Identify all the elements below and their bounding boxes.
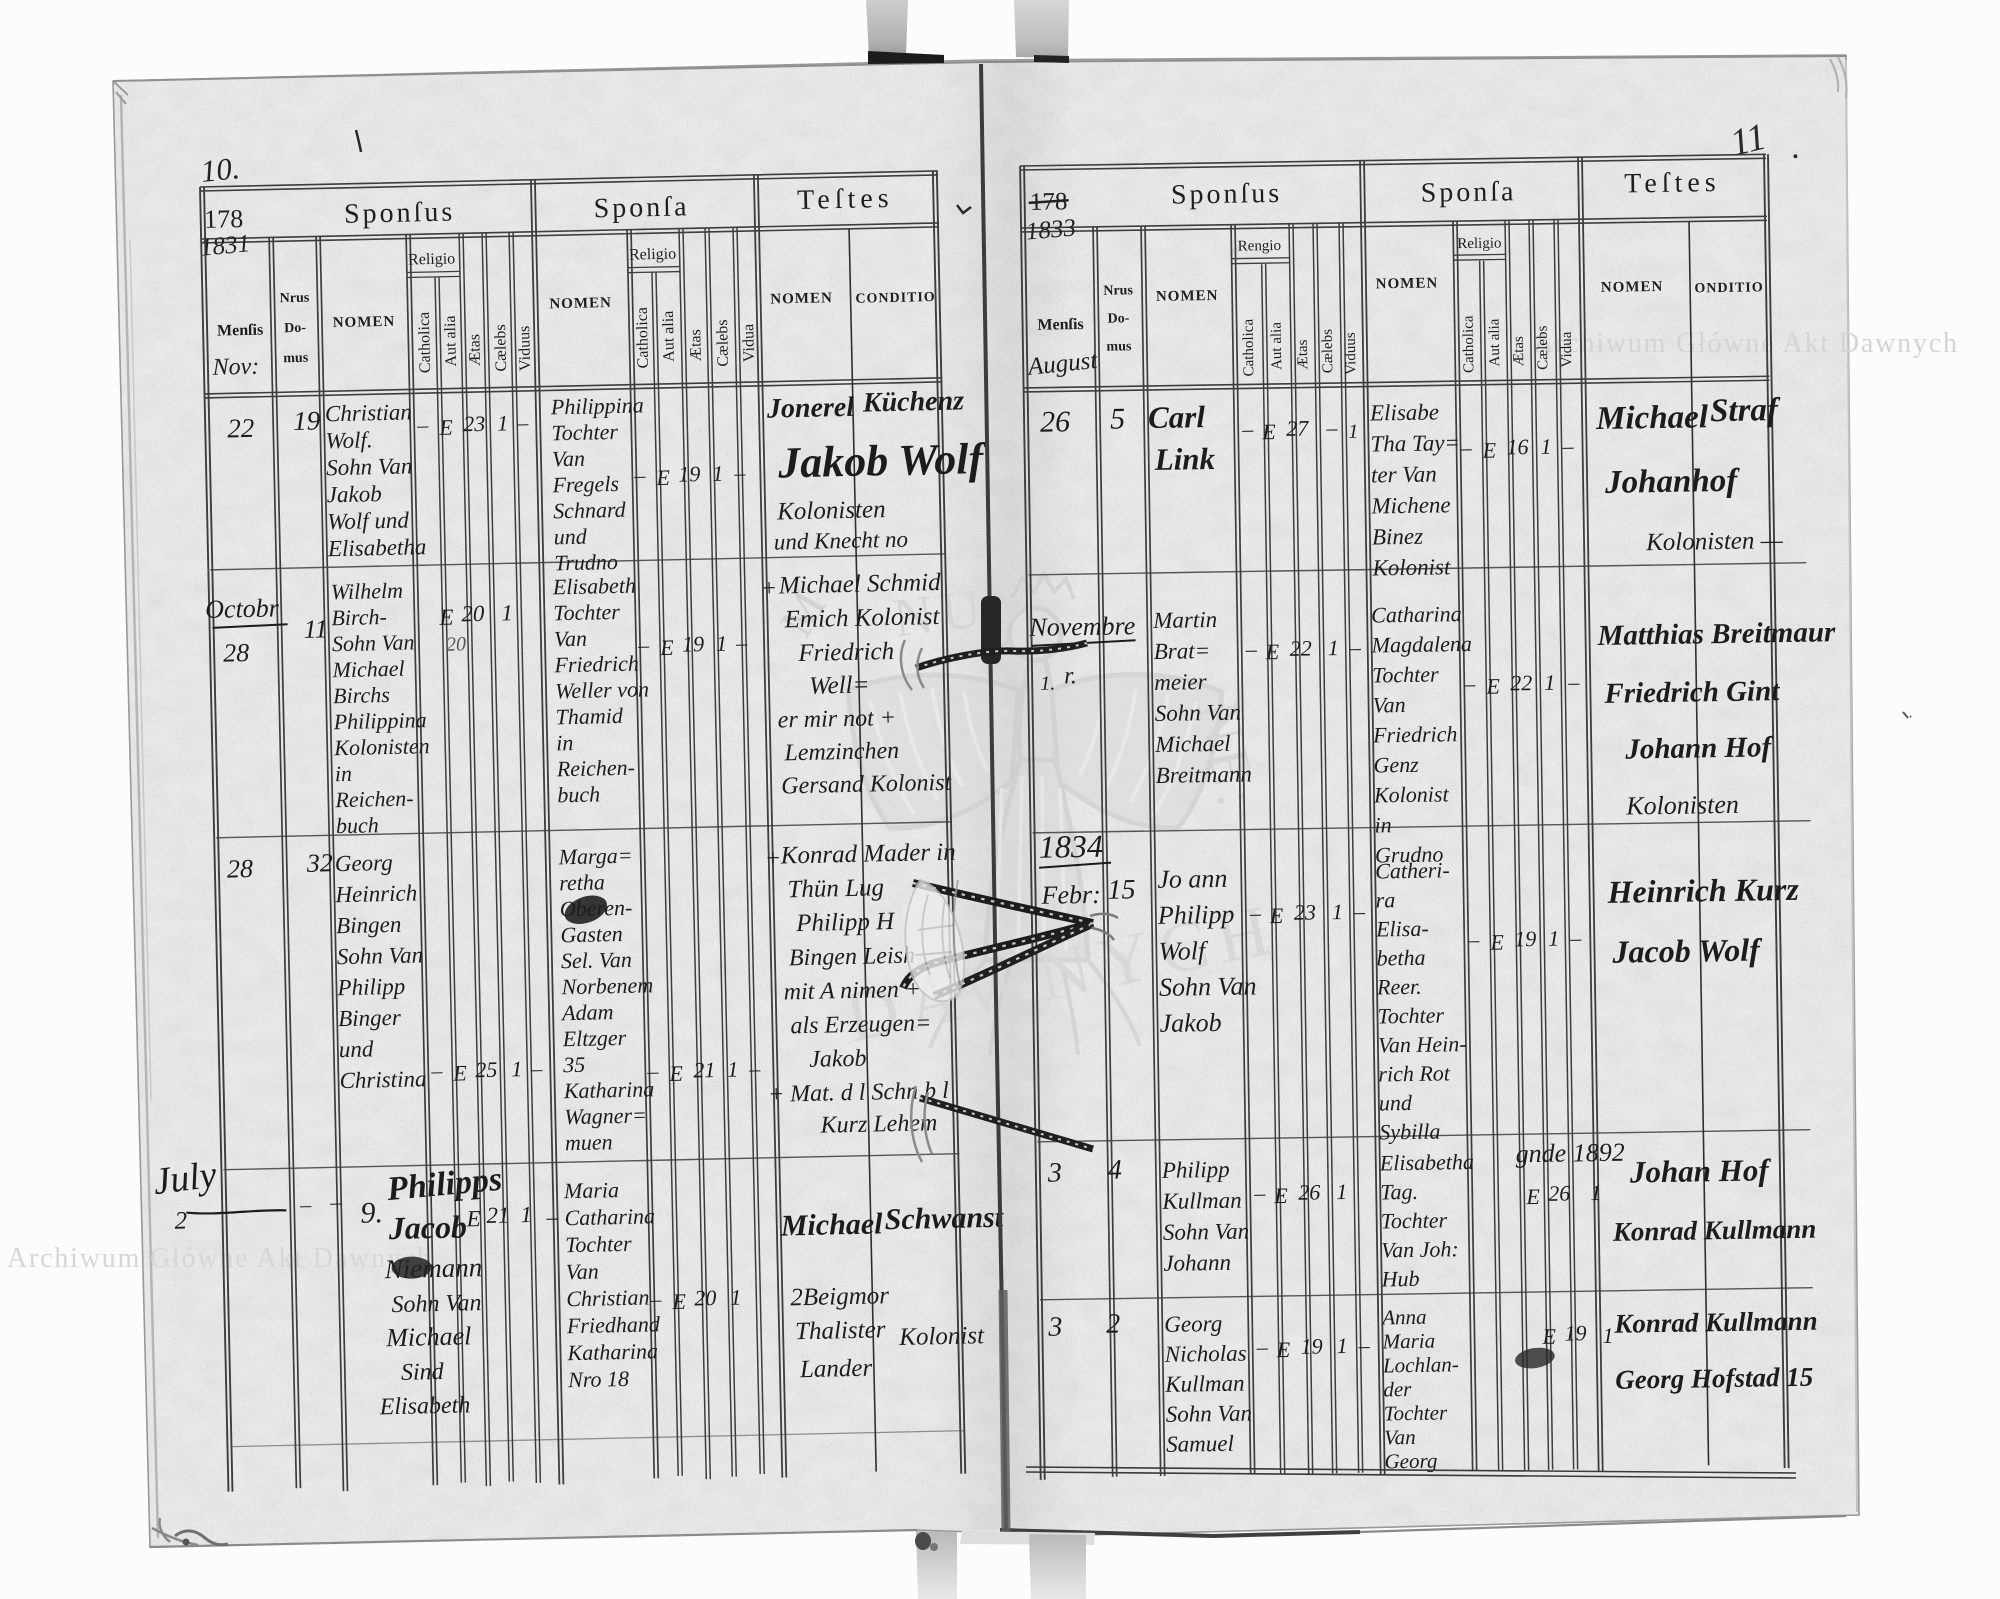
svg-text:Ætas: Ætas [1295,339,1311,369]
svg-text:19: 19 [1300,1333,1322,1358]
svg-text:Marga=: Marga= [557,843,632,870]
svg-text:Elisabe: Elisabe [1369,399,1439,425]
svg-text:Well=: Well= [809,672,870,700]
svg-text:Rengio: Rengio [1238,238,1282,255]
svg-text:Michael: Michael [1154,731,1231,757]
svg-text:Birchs: Birchs [333,682,390,708]
svg-text:Friedrich Gint: Friedrich Gint [1603,675,1780,710]
svg-text:Michael: Michael [331,656,405,683]
svg-text:–: – [733,460,747,485]
svg-text:Brat=: Brat= [1154,638,1211,664]
svg-text:–: – [633,462,647,487]
svg-text:Friedrich: Friedrich [553,651,639,678]
svg-text:Nrus: Nrus [280,291,310,307]
svg-text:Thamid: Thamid [555,703,624,729]
svg-text:Sohn Van: Sohn Van [337,942,424,969]
svg-text:Ætas: Ætas [1511,336,1527,366]
svg-text:Kolonisten —: Kolonisten — [1645,527,1784,556]
svg-text:1831: 1831 [199,230,251,261]
svg-text:Wolf.: Wolf. [325,427,373,453]
svg-text:Lochlan-: Lochlan- [1382,1352,1459,1377]
svg-text:Nov:: Nov: [211,354,259,381]
svg-text:Aut alia: Aut alia [660,311,678,362]
svg-text:er mir not +: er mir not + [777,705,896,734]
svg-text:Catholica: Catholica [416,312,434,374]
svg-text:Bingen Leish: Bingen Leish [789,943,916,972]
svg-text:Tochter: Tochter [1377,1002,1444,1028]
svg-text:–: – [1459,435,1472,460]
svg-text:–: – [1348,635,1361,660]
svg-text:Aut alia: Aut alia [442,315,460,366]
svg-text:Breitmann: Breitmann [1155,761,1252,788]
svg-text:Maria: Maria [563,1177,620,1203]
svg-text:Michael: Michael [779,1207,883,1242]
svg-text:–: – [299,1192,313,1217]
svg-text:26: 26 [1548,1180,1570,1205]
svg-text:und Knecht no: und Knecht no [774,527,909,555]
svg-text:+: + [765,845,782,871]
svg-text:Catholica: Catholica [1241,318,1258,376]
svg-text:Konrad Mader in: Konrad Mader in [779,839,956,870]
svg-text:Jakob: Jakob [809,1046,867,1073]
svg-text:19: 19 [1564,1320,1586,1345]
svg-text:1: 1 [1590,1180,1601,1205]
svg-text:1: 1 [1544,670,1555,695]
svg-text:July: July [151,1153,219,1203]
svg-text:–: – [1325,415,1338,440]
svg-text:1: 1 [501,600,513,625]
svg-text:11: 11 [303,614,328,644]
svg-text:Religio: Religio [629,246,676,264]
svg-text:27: 27 [1286,415,1309,440]
svg-text:Christian: Christian [566,1284,650,1311]
svg-text:Archiwum Główne Akt Dawnych: Archiwum Główne Akt Dawnych [7,1243,433,1274]
svg-text:21: 21 [486,1202,510,1227]
svg-text:23: 23 [463,411,486,436]
svg-text:Bingen: Bingen [336,912,402,938]
svg-text:Catharina: Catharina [1371,601,1462,627]
svg-text:Katharina: Katharina [563,1076,655,1103]
svg-text:Binez: Binez [1372,524,1424,550]
svg-text:Jacob: Jacob [387,1208,467,1246]
svg-text:–: – [1245,636,1258,661]
svg-text:Binger: Binger [338,1005,402,1031]
svg-text:muen: muen [565,1129,613,1155]
svg-text:NOMEN: NOMEN [770,290,833,307]
svg-text:Elisabeth: Elisabeth [378,1392,470,1420]
svg-text:E: E [1481,438,1496,463]
svg-text:Emich Kolonist: Emich Kolonist [783,603,940,633]
svg-text:Michene: Michene [1370,492,1451,518]
svg-text:–: – [1357,1333,1370,1358]
svg-text:–: – [1467,927,1480,952]
svg-text:20: 20 [446,633,466,655]
svg-text:Georg: Georg [1164,1311,1222,1337]
svg-text:buch: buch [557,781,600,807]
svg-text:–: – [329,1189,343,1214]
svg-text:E: E [1485,674,1500,699]
svg-text:Kullman: Kullman [1164,1371,1245,1397]
svg-text:Sponſa: Sponſa [1420,176,1516,209]
svg-text:Küchenz: Küchenz [862,385,965,418]
svg-text:19: 19 [293,405,321,436]
svg-text:15: 15 [1107,874,1135,905]
svg-text:und: und [1379,1090,1413,1116]
svg-text:–: – [1569,925,1582,950]
svg-text:20: 20 [694,1285,717,1310]
svg-text:Van: Van [552,446,586,472]
svg-text:E: E [659,635,675,660]
svg-text:16: 16 [1506,434,1528,459]
svg-text:Michael Schmid: Michael Schmid [778,569,942,600]
svg-text:Catheri-: Catheri- [1375,857,1450,883]
svg-text:Cælebs: Cælebs [492,324,510,371]
svg-text:Catholica: Catholica [1460,315,1477,373]
svg-text:Philipp H: Philipp H [795,908,896,937]
svg-text:Jakob: Jakob [326,481,381,507]
svg-text:betha: betha [1376,945,1425,971]
svg-text:Elisabeth: Elisabeth [552,573,637,600]
svg-text:Octobr: Octobr [205,593,280,624]
svg-text:1: 1 [1548,926,1559,951]
svg-text:Menſis: Menſis [1037,316,1083,334]
svg-text:NOMEN: NOMEN [1601,279,1664,296]
svg-text:mit A nimen +: mit A nimen + [783,976,921,1005]
svg-text:Van: Van [1384,1425,1416,1449]
svg-text:Van Joh:: Van Joh: [1381,1236,1459,1262]
svg-text:Lemzinchen: Lemzinchen [783,738,899,767]
svg-text:1: 1 [1336,1179,1347,1204]
svg-text:–: – [1241,416,1254,441]
svg-text:Kurz Lehem: Kurz Lehem [819,1110,937,1139]
svg-text:E: E [438,415,454,440]
svg-text:Religio: Religio [408,250,455,268]
svg-text:mus: mus [1106,339,1132,354]
svg-text:3: 3 [1047,1311,1062,1342]
svg-text:19: 19 [1514,926,1536,951]
svg-text:–: – [1353,899,1366,924]
svg-text:Schwanst: Schwanst [884,1201,1005,1237]
svg-text:Sohn Van: Sohn Van [332,629,415,656]
svg-text:Archiwum Główne Akt Dawnych: Archiwum Główne Akt Dawnych [1533,328,1959,359]
svg-text:Wilhelm: Wilhelm [331,578,404,605]
svg-text:Thün Lug: Thün Lug [787,874,884,903]
svg-text:Sohn Van: Sohn Van [1166,1401,1253,1427]
svg-text:Menſis: Menſis [217,322,264,340]
svg-text:23: 23 [1294,899,1316,924]
svg-text:Aut alia: Aut alia [1269,322,1286,370]
svg-text:Nicholas: Nicholas [1164,1341,1247,1367]
svg-text:Van: Van [1372,692,1405,718]
svg-text:–: – [545,1204,559,1229]
svg-text:Febr:: Febr: [1040,880,1101,910]
svg-text:26: 26 [1298,1179,1320,1204]
svg-text:Matthias Breitmaur: Matthias Breitmaur [1596,616,1836,652]
svg-text:Johann Hof: Johann Hof [1624,731,1775,765]
svg-text:als Erzeugen=: als Erzeugen= [790,1010,931,1039]
svg-text:Sponſus: Sponſus [1171,178,1283,211]
svg-text:Magdalena: Magdalena [1370,631,1472,658]
svg-text:Philippina: Philippina [332,707,426,734]
svg-text:10.: 10. [199,150,241,189]
svg-text:ONDITIO: ONDITIO [1694,280,1763,296]
svg-text:Elisabetha: Elisabetha [1379,1149,1474,1175]
svg-text:rich Rot: rich Rot [1378,1060,1451,1086]
svg-text:E: E [668,1061,684,1086]
svg-text:Reichen-: Reichen- [556,755,636,782]
svg-text:1: 1 [727,1056,739,1081]
svg-text:Weller von: Weller von [555,676,649,703]
svg-text:Jakob Wolf: Jakob Wolf [777,434,988,488]
svg-text:Trudno: Trudno [554,549,618,575]
svg-text:Kolonisten: Kolonisten [1625,790,1739,821]
svg-text:–: – [530,1056,544,1081]
svg-text:Religio: Religio [1457,235,1501,252]
svg-text:.: . [1792,129,1801,166]
svg-text:Johan Hof: Johan Hof [1629,1152,1772,1189]
svg-text:Georg: Georg [335,850,393,876]
svg-text:32: 32 [305,848,333,878]
svg-text:Tochter: Tochter [1381,1207,1448,1233]
svg-text:E: E [452,1060,468,1085]
svg-text:Wolf und: Wolf und [327,508,410,535]
svg-text:2: 2 [1106,1309,1120,1340]
svg-text:21: 21 [693,1057,716,1082]
svg-text:Hub: Hub [1380,1266,1419,1292]
svg-text:19: 19 [678,461,701,486]
svg-text:–: – [649,1286,663,1311]
svg-text:Heinrich Kurz: Heinrich Kurz [1606,871,1799,910]
svg-text:Anna: Anna [1380,1305,1427,1330]
svg-text:CONDITIO: CONDITIO [855,290,936,307]
svg-text:Philipp: Philipp [1157,900,1235,930]
svg-text:Philipp: Philipp [336,974,405,1000]
svg-text:Lander: Lander [799,1355,873,1384]
svg-text:Johanhof: Johanhof [1604,463,1741,501]
svg-text:Sohn Van: Sohn Van [391,1290,482,1318]
svg-text:–: – [1253,1180,1266,1205]
svg-text:1: 1 [712,461,724,486]
svg-text:Jonerel: Jonerel [766,392,855,425]
svg-text:–: – [735,630,749,655]
svg-text:E: E [671,1289,687,1314]
svg-text:Sponſa: Sponſa [593,191,689,224]
svg-text:Birch-: Birch- [331,604,387,630]
svg-text:1: 1 [1540,434,1551,459]
svg-text:E: E [465,1206,481,1231]
svg-text:–: – [1255,1334,1268,1359]
svg-text:1: 1 [1336,1333,1347,1358]
svg-text:Reer.: Reer. [1376,974,1422,1000]
svg-text:Tochter: Tochter [1372,661,1439,687]
svg-text:Kolonisten: Kolonisten [333,733,430,760]
svg-text:E: E [655,465,671,490]
svg-text:Tag.: Tag. [1380,1179,1418,1205]
svg-text:–: – [646,1058,660,1083]
svg-text:Wagner=: Wagner= [564,1102,647,1129]
svg-text:E: E [1489,929,1504,954]
svg-text:Samuel: Samuel [1166,1431,1234,1457]
svg-text:2Beigmor: 2Beigmor [790,1282,889,1311]
svg-text:E: E [1276,1337,1291,1362]
svg-text:Van: Van [565,1259,599,1285]
svg-text:28: 28 [223,638,250,668]
svg-text:E: E [1273,1183,1288,1208]
svg-text:Martin: Martin [1152,607,1217,633]
svg-text:und: und [339,1036,375,1062]
svg-text:Michael: Michael [1595,399,1709,437]
svg-text:E: E [1525,1184,1540,1209]
svg-text:Tochter: Tochter [1384,1400,1449,1425]
svg-text:+ Mat. d l Schn b l: + Mat. d l Schn b l [768,1078,950,1108]
svg-text:Friedrich: Friedrich [797,638,894,667]
svg-text:r.: r. [1064,663,1077,689]
svg-text:E: E [438,605,454,630]
svg-text:NOMEN: NOMEN [1376,275,1439,292]
svg-text:retha: retha [559,869,605,895]
svg-text:Elisabetha: Elisabetha [327,534,427,561]
svg-text:in: in [1374,812,1392,837]
svg-text:Gasten: Gasten [560,921,623,947]
svg-text:Reichen-: Reichen- [334,785,414,812]
svg-text:Wolf: Wolf [1158,936,1209,966]
svg-text:und: und [553,524,588,550]
svg-text:E: E [1265,639,1280,664]
svg-text:–: – [748,1056,762,1081]
svg-text:Carl: Carl [1148,399,1206,435]
svg-text:Ætas: Ætas [466,334,484,366]
svg-text:Cælebs: Cælebs [714,319,732,366]
svg-text:35: 35 [562,1052,586,1077]
svg-text:Tochter: Tochter [553,599,620,625]
svg-text:Novembre: Novembre [1028,611,1135,642]
svg-text:1: 1 [716,631,728,656]
svg-text:–: – [637,632,651,657]
svg-text:Catharina: Catharina [564,1203,655,1230]
svg-text:Teſtes: Teſtes [1624,167,1721,200]
svg-text:ter Van: ter Van [1371,461,1437,487]
svg-text:Jo ann: Jo ann [1157,864,1227,894]
svg-text:gnde 1892: gnde 1892 [1515,1138,1624,1169]
svg-text:Adam: Adam [560,999,614,1025]
svg-text:Straf: Straf [1710,392,1781,429]
svg-text:Thalister: Thalister [795,1316,886,1345]
svg-text:Kolonist: Kolonist [1371,554,1451,580]
svg-text:ra: ra [1375,887,1395,912]
svg-text:1833: 1833 [1025,214,1077,245]
svg-text:1: 1 [511,1056,523,1081]
svg-text:Konrad Kullmann: Konrad Kullmann [1613,1306,1818,1339]
svg-text:E: E [1261,419,1276,444]
svg-text:20: 20 [461,601,485,627]
svg-text:Christina: Christina [339,1066,426,1093]
svg-text:E: E [1269,903,1284,928]
svg-text:Genz: Genz [1373,752,1419,778]
svg-text:Philipp: Philipp [1161,1157,1230,1183]
svg-text:Viduus: Viduus [516,326,534,372]
svg-text:Sohn Van: Sohn Van [1159,971,1257,1002]
svg-text:Kolonist: Kolonist [898,1322,985,1351]
svg-text:26: 26 [1040,405,1071,438]
svg-text:1: 1 [520,1202,532,1227]
svg-text:1: 1 [1348,421,1358,443]
svg-text:22: 22 [1510,670,1532,695]
svg-text:Fregels: Fregels [551,471,619,497]
svg-text:Tochter: Tochter [551,419,618,445]
svg-text:19: 19 [682,631,705,656]
svg-text:5: 5 [1110,402,1126,435]
svg-text:Philippina: Philippina [550,392,644,419]
svg-text:22: 22 [1290,635,1312,660]
svg-text:Heinrich: Heinrich [334,880,417,907]
svg-text:Sybilla: Sybilla [1379,1119,1440,1145]
svg-text:Do-: Do- [1108,311,1130,326]
svg-text:178: 178 [204,204,244,234]
svg-text:28: 28 [227,854,254,884]
svg-text:4: 4 [1108,1155,1122,1186]
svg-text:Do-: Do- [284,321,306,336]
svg-text:+: + [761,576,778,602]
svg-text:Tochter: Tochter [565,1231,632,1257]
svg-text:2: 2 [174,1208,187,1235]
svg-text:Ætas: Ætas [687,329,705,361]
svg-text:Van Hein-: Van Hein- [1378,1031,1467,1057]
svg-text:Viduus: Viduus [1343,332,1360,375]
svg-text:9.: 9. [360,1196,383,1229]
svg-text:Teſtes: Teſtes [797,183,894,216]
svg-text:Sohn Van: Sohn Van [326,453,413,480]
svg-text:Katharina: Katharina [566,1338,658,1365]
svg-text:Tha Tay=: Tha Tay= [1370,430,1460,456]
svg-text:Jakob: Jakob [1159,1008,1222,1038]
svg-text:Cælebs: Cælebs [1320,329,1337,374]
svg-text:1: 1 [1332,899,1343,924]
svg-text:Vidua: Vidua [740,324,758,363]
svg-text:E: E [1541,1324,1556,1349]
svg-text:NOMEN: NOMEN [549,295,612,312]
svg-text:25: 25 [475,1057,498,1082]
svg-text:1834: 1834 [1039,828,1104,865]
svg-text:Maria: Maria [1381,1329,1435,1354]
svg-text:–: – [1249,900,1262,925]
svg-text:Link: Link [1153,441,1215,477]
svg-text:Kolonisten: Kolonisten [776,496,886,525]
svg-text:der: der [1383,1377,1412,1401]
svg-text:Norbenem: Norbenem [560,972,653,999]
svg-text:–: – [1561,433,1574,458]
svg-text:Georg Hofstad 15: Georg Hofstad 15 [1615,1362,1813,1395]
svg-text:Sel. Van: Sel. Van [561,947,632,974]
svg-text:–: – [516,410,530,435]
svg-text:Schnard: Schnard [553,497,627,524]
svg-text:Kullman: Kullman [1161,1188,1242,1214]
svg-text:in: in [335,761,353,786]
svg-text:–: – [430,1058,444,1083]
svg-text:Sohn Van: Sohn Van [1155,700,1242,726]
svg-text:in: in [556,730,574,755]
svg-text:Aut alia: Aut alia [1487,318,1504,366]
svg-text:Johann: Johann [1163,1250,1231,1276]
svg-text:mus: mus [283,351,309,367]
svg-text:Sind: Sind [401,1359,445,1386]
svg-text:Sponſus: Sponſus [344,196,456,229]
svg-text:buch: buch [336,812,379,838]
svg-text:3: 3 [1047,1157,1062,1188]
svg-text:1: 1 [730,1284,742,1309]
svg-text:1.: 1. [1040,673,1055,695]
svg-text:Eltzger: Eltzger [561,1025,627,1051]
svg-text:Nrus: Nrus [1103,283,1133,298]
